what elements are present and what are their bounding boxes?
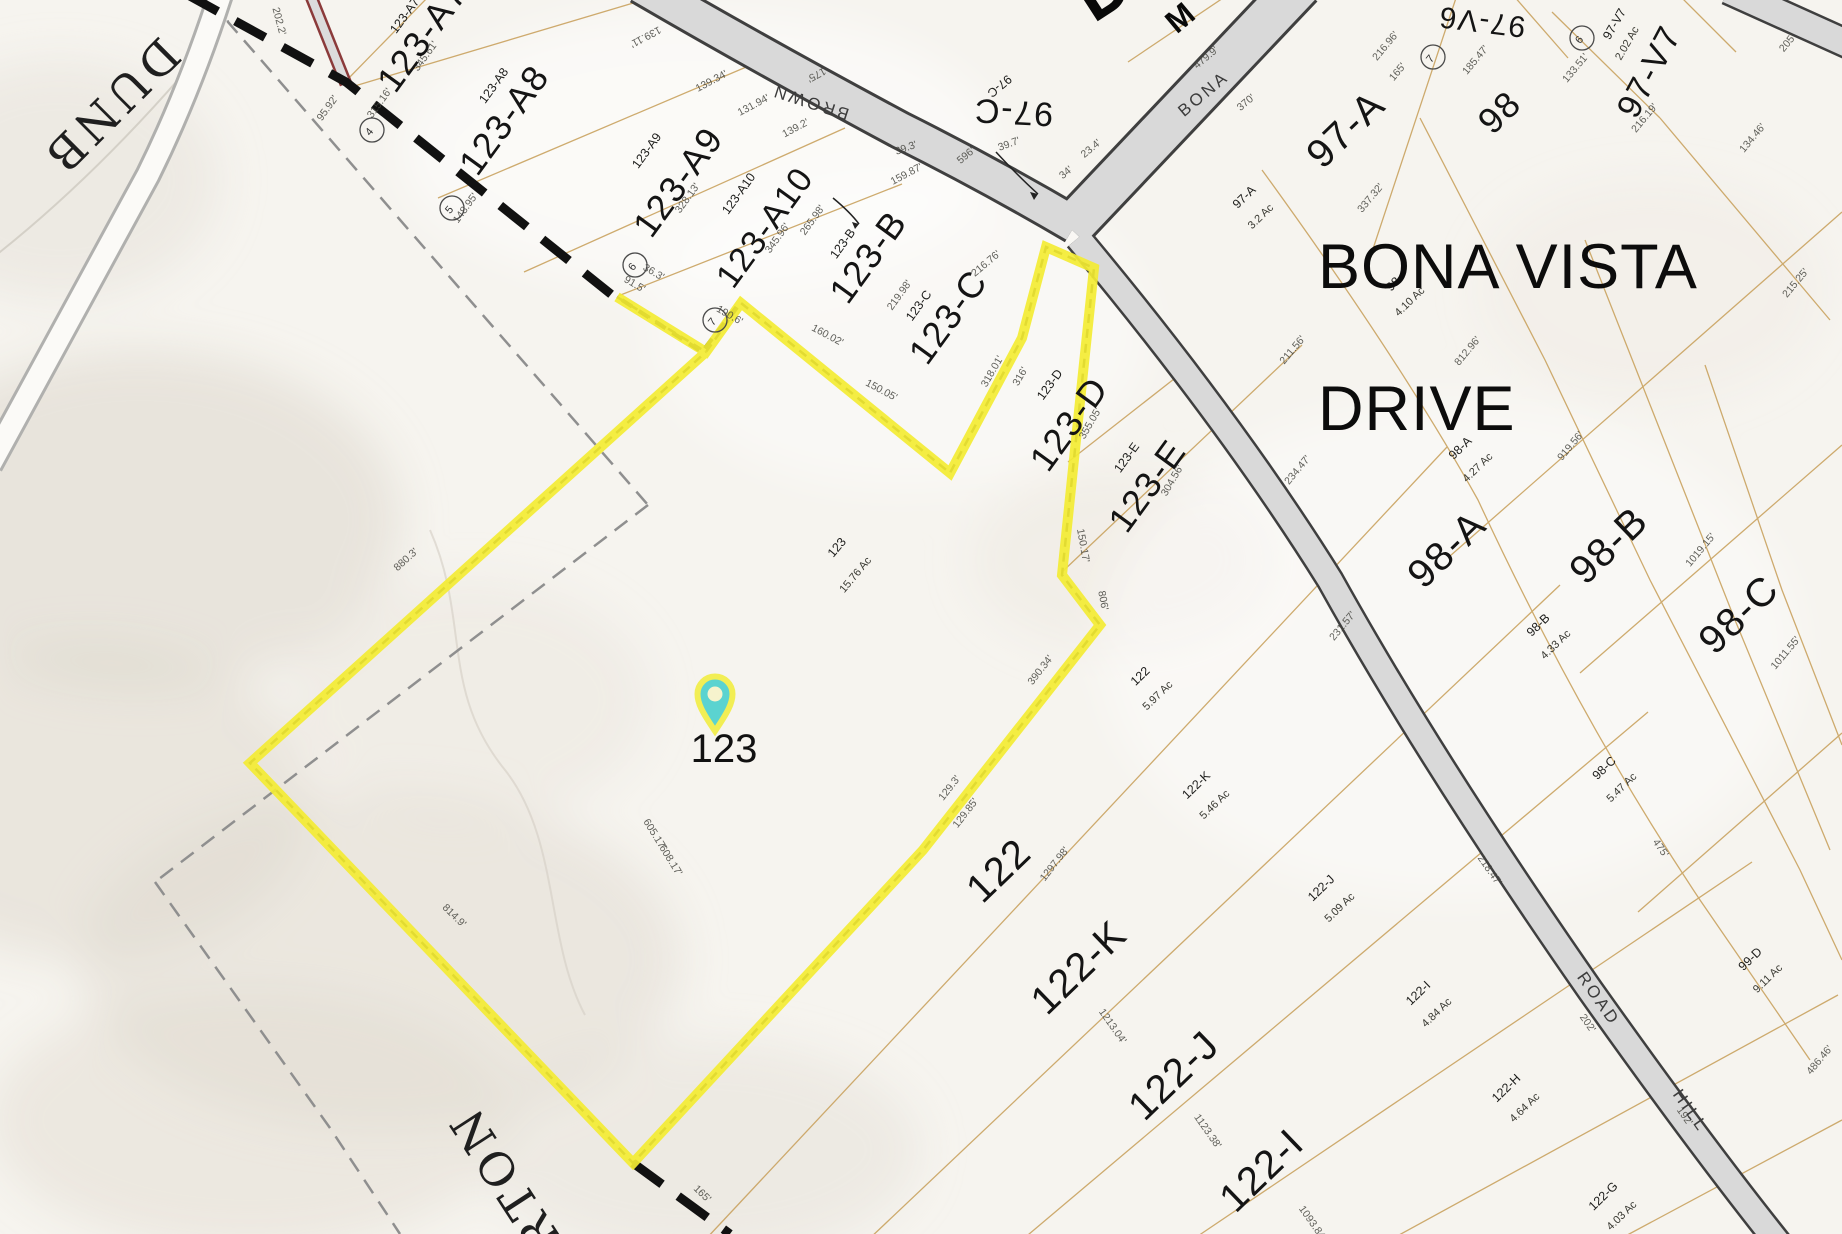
parcel-id-large: 97-C: [973, 91, 1055, 133]
pin-icon-hole: [708, 687, 723, 702]
map-canvas[interactable]: 95.92'202.2'345.61'315.16'148.95'328.13'…: [0, 0, 1842, 1234]
map-viewport[interactable]: 95.92'202.2'345.61'315.16'148.95'328.13'…: [0, 0, 1842, 1234]
street-name-line1: BONA VISTA: [1318, 232, 1698, 302]
pin-parcel-number: 123: [691, 727, 758, 771]
street-name-line2: DRIVE: [1318, 374, 1516, 444]
